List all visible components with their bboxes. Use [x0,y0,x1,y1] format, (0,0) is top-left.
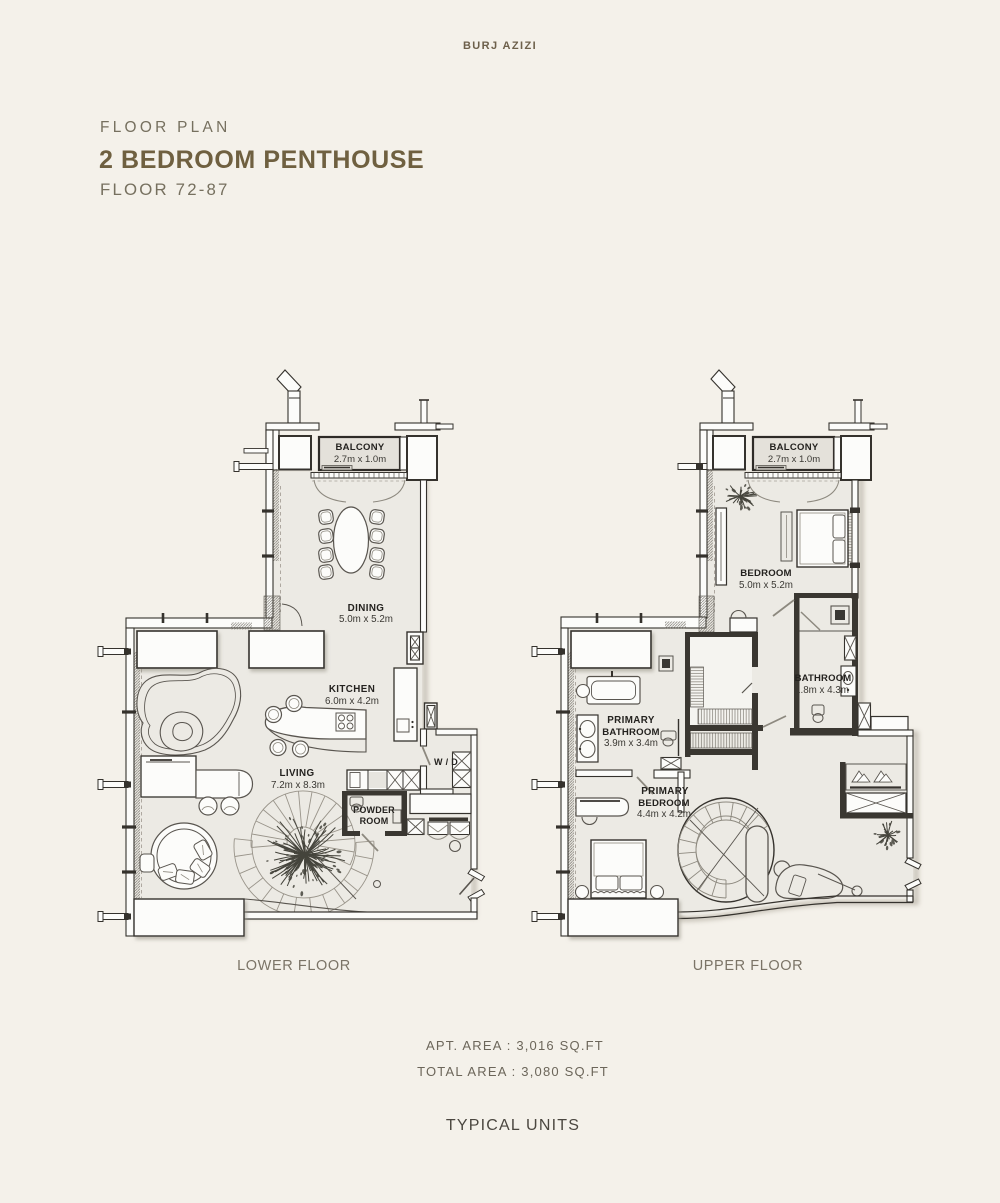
svg-text:BALCONY: BALCONY [335,442,384,453]
svg-text:5.0m x 5.2m: 5.0m x 5.2m [739,580,793,591]
svg-text:BATHROOM: BATHROOM [602,727,659,738]
svg-text:W / D: W / D [434,757,458,767]
svg-text:4.4m x 4.2m: 4.4m x 4.2m [637,809,691,820]
svg-text:DINING: DINING [348,603,385,614]
svg-text:5.0m x 5.2m: 5.0m x 5.2m [339,614,393,625]
svg-text:PRIMARY: PRIMARY [641,786,689,797]
svg-text:7.2m x 8.3m: 7.2m x 8.3m [271,780,325,791]
svg-text:UPPER FLOOR: UPPER FLOOR [693,958,804,974]
svg-text:TYPICAL UNITS: TYPICAL UNITS [446,1117,580,1134]
svg-text:BALCONY: BALCONY [769,442,818,453]
svg-text:FLOOR 72-87: FLOOR 72-87 [100,180,230,199]
svg-text:2 BEDROOM PENTHOUSE: 2 BEDROOM PENTHOUSE [99,146,424,174]
svg-text:KITCHEN: KITCHEN [329,684,375,695]
svg-text:2.7m x 1.0m: 2.7m x 1.0m [334,454,386,465]
svg-text:ROOM: ROOM [360,816,389,826]
svg-text:3.9m x 3.4m: 3.9m x 3.4m [604,738,658,749]
svg-text:BEDROOM: BEDROOM [740,568,792,579]
svg-text:PRIMARY: PRIMARY [607,715,655,726]
svg-text:1.8m x 4.3m: 1.8m x 4.3m [795,685,849,696]
svg-text:FLOOR PLAN: FLOOR PLAN [100,119,231,136]
svg-text:POWDER: POWDER [353,805,395,815]
svg-text:LOWER FLOOR: LOWER FLOOR [237,958,351,974]
svg-text:TOTAL AREA : 3,080 SQ.FT: TOTAL AREA : 3,080 SQ.FT [417,1064,609,1079]
svg-text:BURJ AZIZI: BURJ AZIZI [463,40,537,52]
svg-text:BEDROOM: BEDROOM [638,798,690,809]
svg-text:2.7m x 1.0m: 2.7m x 1.0m [768,454,820,465]
svg-text:BATHROOM: BATHROOM [795,673,852,684]
svg-text:6.0m x 4.2m: 6.0m x 4.2m [325,696,379,707]
svg-text:APT. AREA : 3,016 SQ.FT: APT. AREA : 3,016 SQ.FT [426,1038,604,1053]
svg-text:LIVING: LIVING [279,768,314,779]
